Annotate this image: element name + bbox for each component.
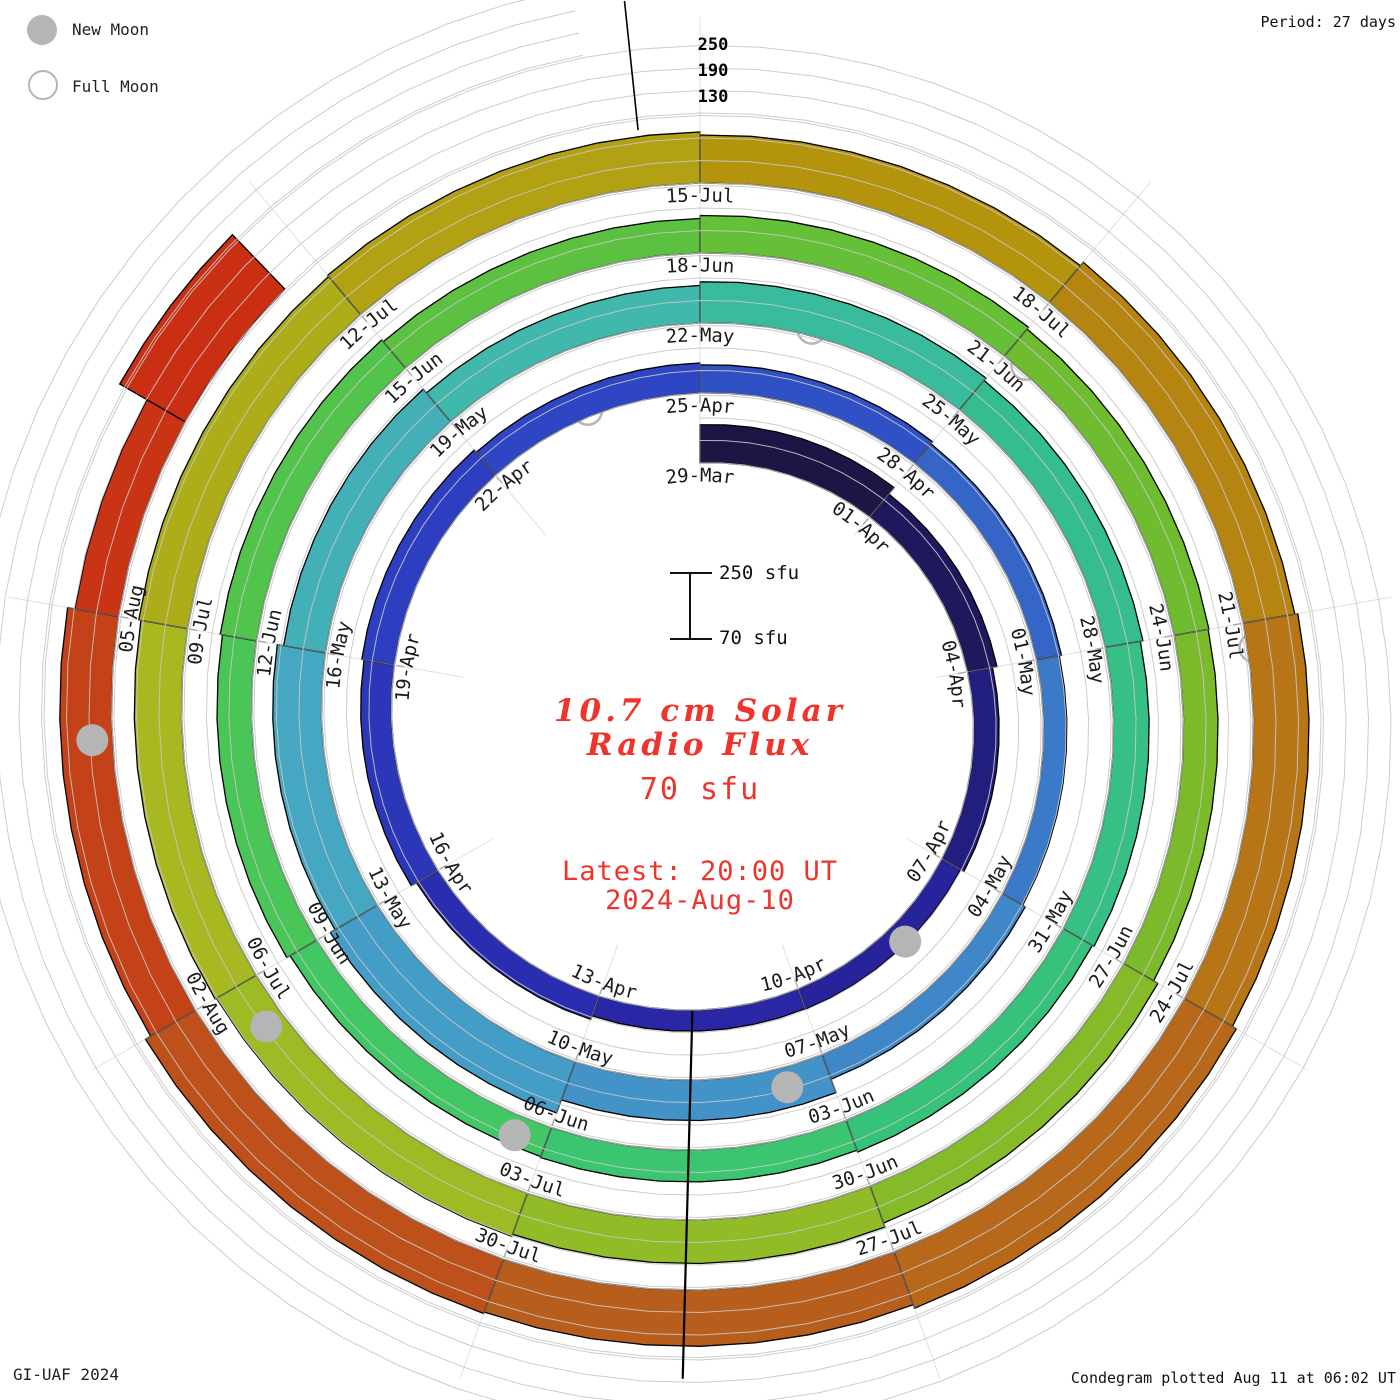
new-moon-icon bbox=[27, 15, 57, 45]
date-label: - bbox=[688, 464, 700, 486]
date-label: J bbox=[700, 184, 712, 206]
footer-plotted-timestamp: Condegram plotted Aug 11 at 06:02 UT bbox=[1071, 1369, 1396, 1387]
date-label: 5 bbox=[677, 395, 690, 418]
date-label: u bbox=[711, 185, 723, 207]
scale-bar-top-cap bbox=[670, 572, 712, 574]
new-moon-marker bbox=[76, 724, 108, 756]
date-label: r bbox=[722, 395, 735, 418]
date-label: - bbox=[688, 254, 700, 276]
legend-new-moon-label: New Moon bbox=[72, 20, 149, 39]
footer-credit: GI-UAF 2024 bbox=[13, 1365, 119, 1384]
axis-tick-190: 190 bbox=[689, 61, 737, 81]
legend-full-moon-label: Full Moon bbox=[72, 77, 159, 96]
date-label: 5 bbox=[677, 185, 689, 207]
date-label: y bbox=[1085, 671, 1108, 685]
date-label: y bbox=[722, 325, 735, 348]
axis-tick-130: 130 bbox=[689, 87, 737, 107]
latest-date: 2024-Aug-10 bbox=[420, 886, 980, 915]
latest-time: Latest: 20:00 UT bbox=[420, 857, 980, 886]
date-label: M bbox=[700, 324, 712, 346]
date-label: - bbox=[688, 324, 700, 346]
date-label: - bbox=[688, 395, 700, 417]
new-moon-marker bbox=[771, 1071, 803, 1103]
date-label: 1 bbox=[665, 185, 678, 208]
chart-title-line1: 10.7 cm Solar bbox=[420, 694, 980, 728]
current-flux-value: 70 sfu bbox=[420, 772, 980, 807]
scale-bar-min-label: 70 sfu bbox=[719, 627, 788, 649]
condegram-page: 29-Mar01-Apr04-Apr07-Apr10-Apr13-Apr16-A… bbox=[0, 0, 1400, 1400]
flux-segment bbox=[476, 363, 700, 475]
new-moon-marker bbox=[250, 1011, 282, 1043]
new-moon-marker bbox=[499, 1119, 531, 1151]
date-label: 8 bbox=[677, 255, 689, 277]
date-label: n bbox=[722, 255, 735, 278]
date-label: J bbox=[700, 254, 712, 276]
date-label: n bbox=[1154, 659, 1177, 673]
scale-bar-bottom-cap bbox=[670, 638, 712, 640]
date-label: 2 bbox=[677, 325, 689, 347]
chart-title: 10.7 cm Solar Radio Flux bbox=[420, 694, 980, 762]
date-label: y bbox=[1016, 683, 1039, 696]
date-label: - bbox=[688, 184, 700, 206]
new-moon-marker bbox=[889, 926, 921, 958]
period-label: Period: 27 days bbox=[1261, 13, 1396, 31]
flux-segment bbox=[484, 1252, 913, 1346]
axis-tick-250: 250 bbox=[689, 35, 737, 55]
date-label: r bbox=[721, 466, 735, 489]
full-moon-icon bbox=[28, 70, 58, 100]
chart-title-line2: Radio Flux bbox=[420, 728, 980, 762]
latest-observation: Latest: 20:00 UT 2024-Aug-10 bbox=[420, 857, 980, 915]
scale-bar bbox=[689, 573, 691, 640]
scale-bar-max-label: 250 sfu bbox=[719, 562, 799, 584]
date-label: l bbox=[722, 185, 735, 208]
